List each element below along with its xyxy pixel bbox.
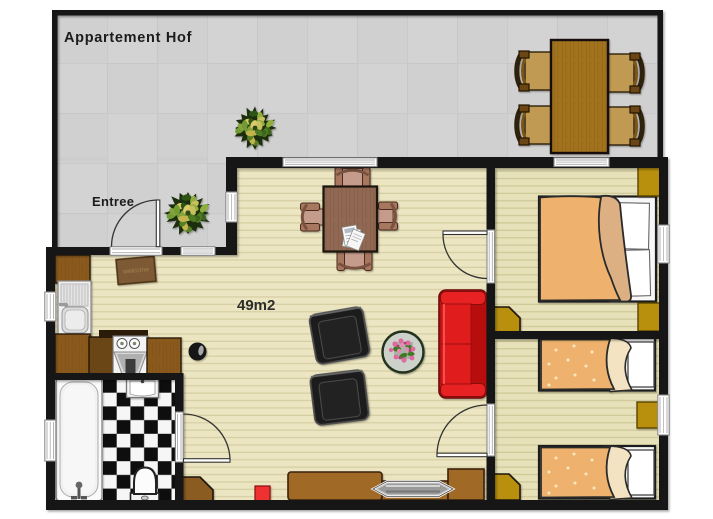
svg-text:Appartement Hof: Appartement Hof	[64, 30, 192, 46]
svg-text:Entree: Entree	[92, 194, 134, 209]
svg-text:49m2: 49m2	[237, 297, 275, 314]
